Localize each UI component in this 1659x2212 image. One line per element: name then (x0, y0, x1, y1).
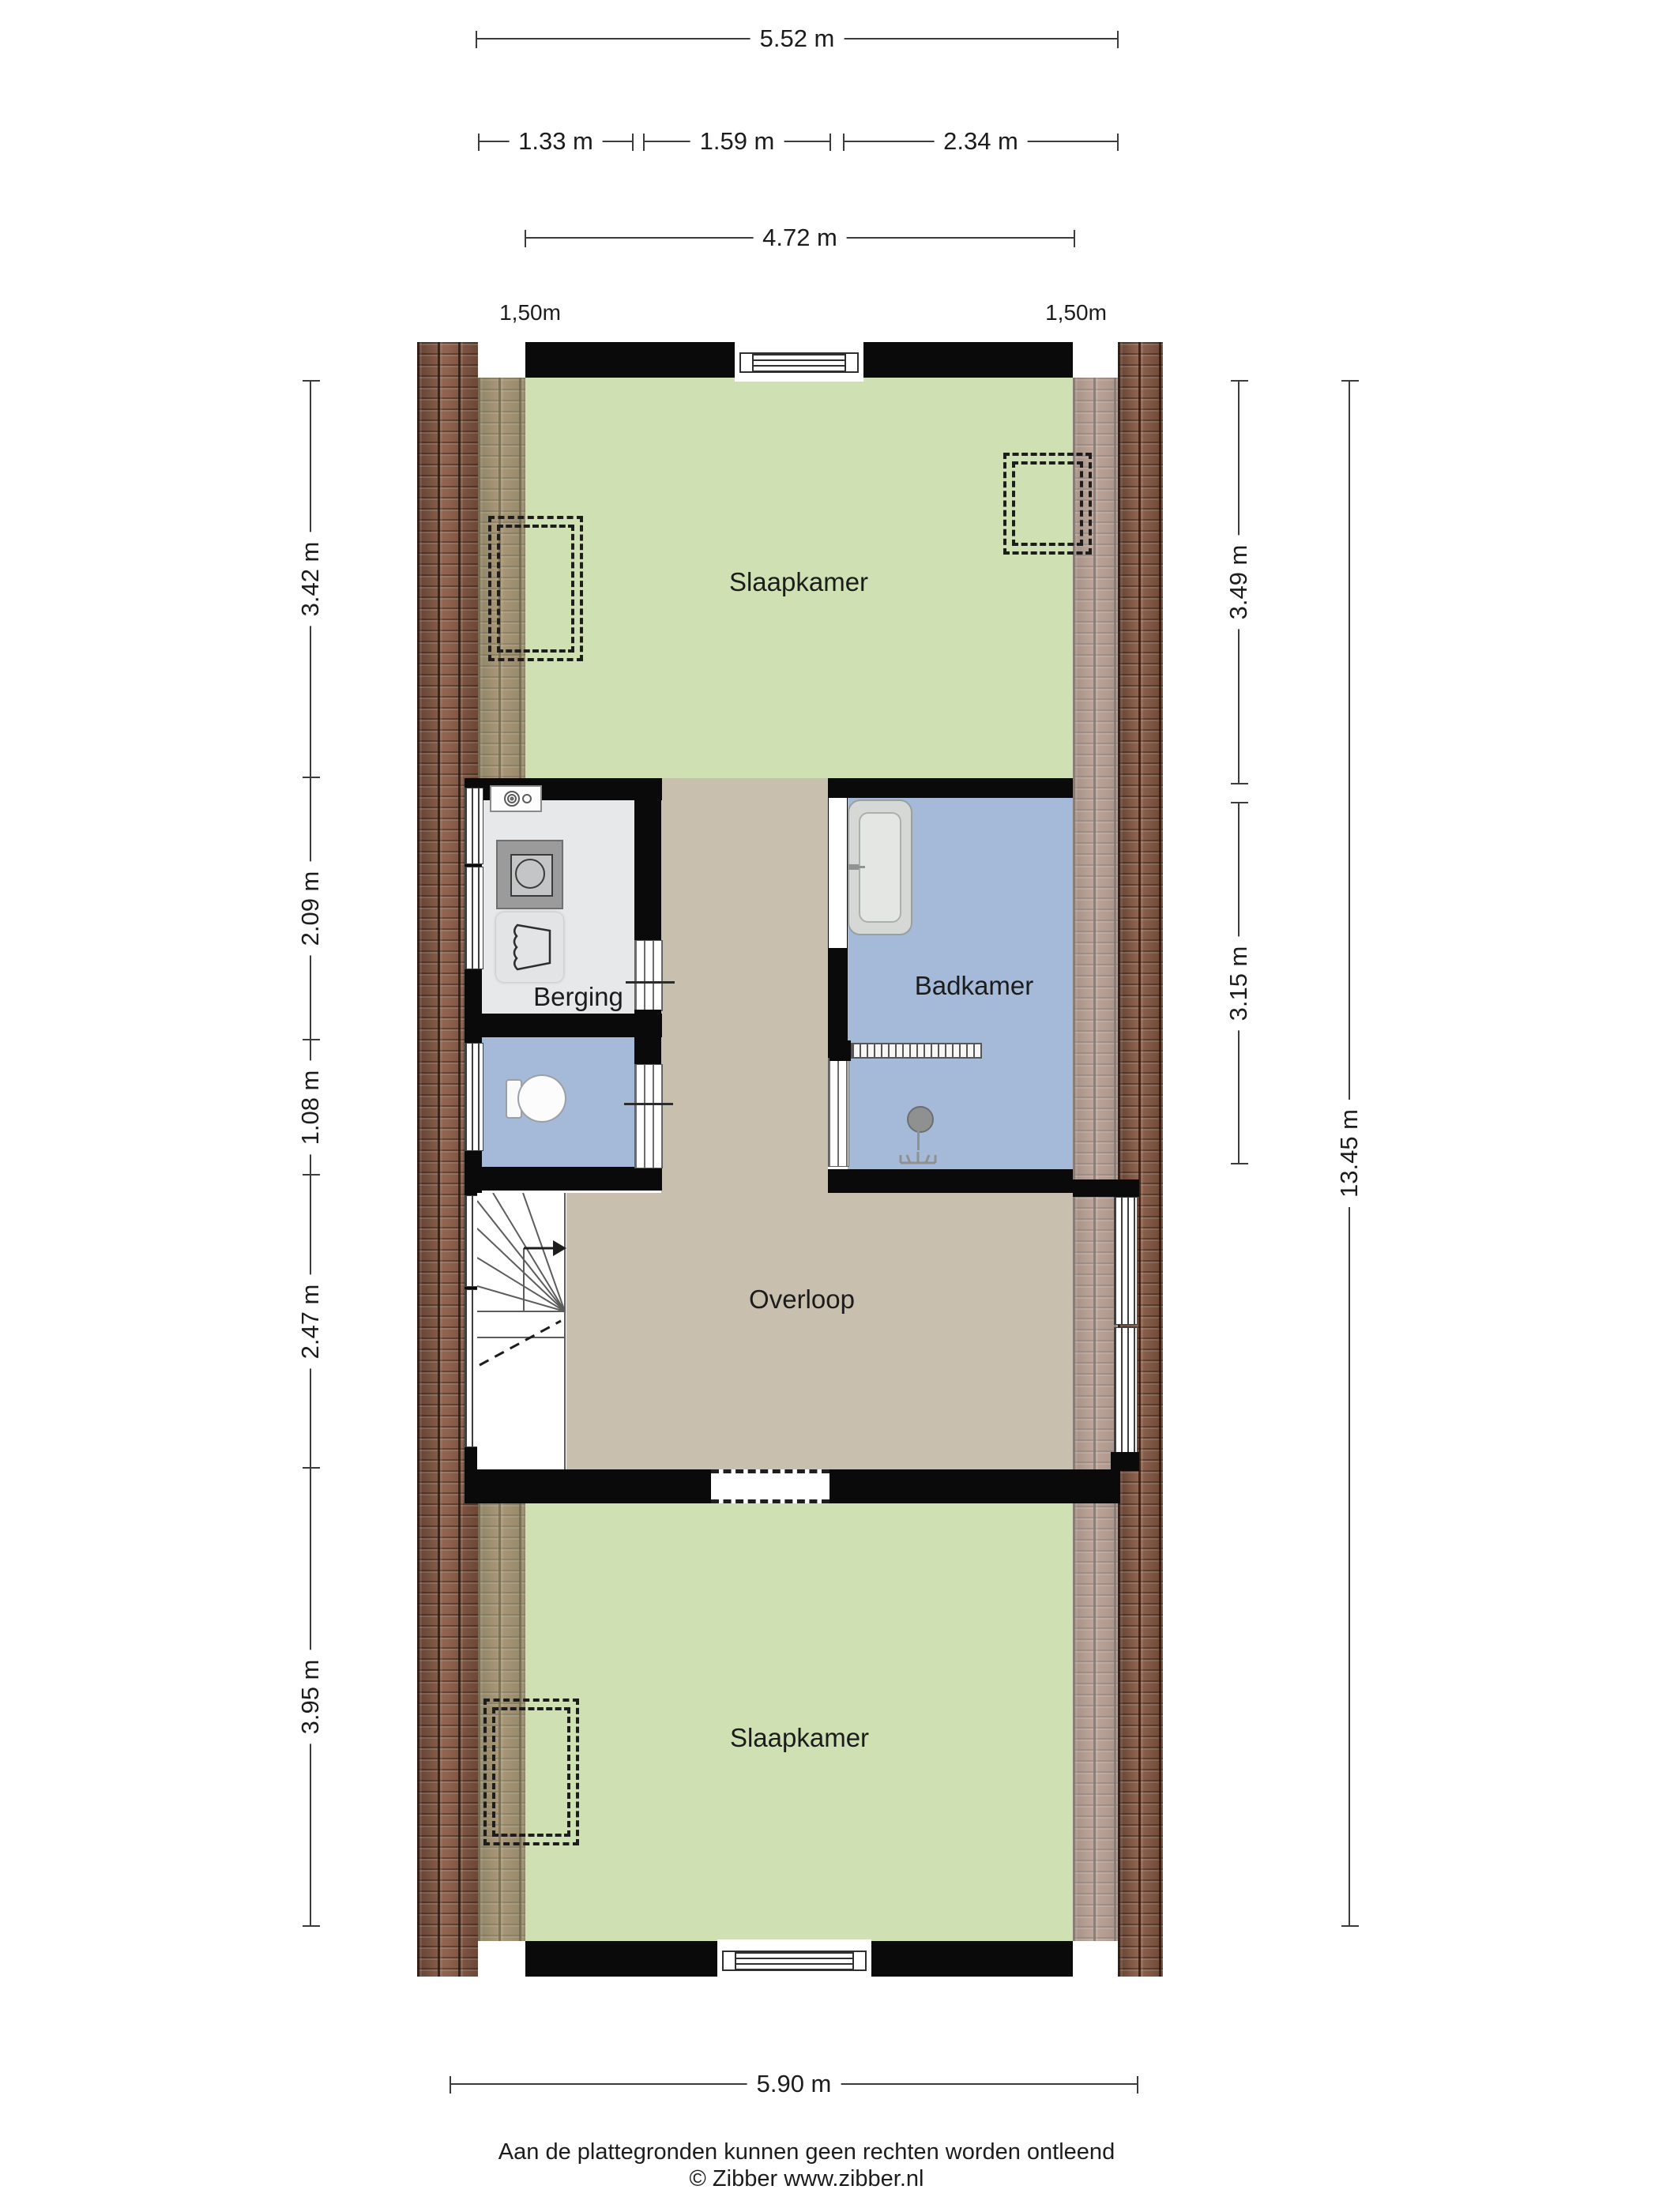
dimension-label: 13.45 m (1334, 1100, 1365, 1207)
dimension-label: 2.47 m (295, 1274, 326, 1368)
door-bathroom (828, 1058, 849, 1167)
footer-disclaimer: Aan de plattegronden kunnen geen rechten… (498, 2139, 1115, 2165)
window-glazing (741, 352, 857, 373)
window-landing-right-2 (1114, 1327, 1138, 1454)
wall-storage-right (634, 778, 661, 940)
wall-storage-right-lower (634, 1010, 661, 1064)
floorplan-page: 5.52 m 1.33 m 1.59 m 2.34 m 4.72 m 1,50m… (0, 0, 1659, 2212)
shower-mixer-icon (896, 1147, 940, 1168)
wall-bathroom-bottom (828, 1169, 1073, 1193)
dimension-left-2: 2.09 m (310, 777, 311, 1040)
wall-landing-right-stub-bottom (1111, 1452, 1139, 1471)
wall-top-left (525, 342, 735, 378)
dimension-top-seg-1: 1.33 m (479, 141, 633, 142)
wall-toilet-bottom (465, 1167, 662, 1191)
dimension-label: 1.33 m (509, 126, 603, 157)
wall-top-right (863, 342, 1073, 378)
dimension-left-4: 2.47 m (310, 1175, 311, 1468)
knee-wall-height-left: 1,50m (499, 300, 561, 325)
dimension-label: 2.34 m (934, 126, 1028, 157)
window-landing-right-1 (1114, 1197, 1138, 1325)
roof-strip-right (1118, 342, 1163, 1977)
dormer-dashed-bottom-left (483, 1698, 579, 1845)
dimension-top-seg-2: 1.59 m (644, 141, 830, 142)
window-cap (845, 352, 859, 373)
dormer-dashed-top-right (1003, 453, 1092, 555)
dimension-left-5: 3.95 m (310, 1468, 311, 1926)
window-cap (722, 1951, 736, 1971)
dimension-label: 1.08 m (295, 1060, 326, 1154)
wall-landing-bottom-right (829, 1469, 1120, 1503)
ventilation-unit-icon (490, 785, 542, 812)
dimension-top-total: 5.52 m (476, 38, 1118, 39)
dimension-label: 5.52 m (750, 23, 845, 55)
window-cap (852, 1951, 867, 1971)
landing-floor (482, 1193, 1073, 1469)
washing-machine-icon (496, 840, 563, 909)
sink-icon (848, 799, 912, 935)
dimension-label: 3.42 m (295, 532, 326, 626)
radiator-icon (851, 1043, 982, 1059)
room-label-landing: Overloop (749, 1285, 855, 1315)
dimension-left-1: 3.42 m (310, 381, 311, 777)
room-label-storage: Berging (533, 982, 623, 1012)
toilet-icon (517, 1074, 566, 1123)
laundry-basket-icon (496, 912, 563, 982)
radiator-end-block (829, 1040, 851, 1061)
wall-landing-right-stub-top (1073, 1179, 1139, 1197)
dimension-bottom: 5.90 m (450, 2083, 1138, 2085)
shower-head-icon (907, 1106, 934, 1133)
dimension-right-1: 3.49 m (1238, 381, 1240, 784)
window-storage-1 (465, 788, 483, 864)
wall-bottom-right (871, 1941, 1073, 1977)
faucet-icon (848, 858, 867, 877)
bathroom-vanity-back (829, 798, 847, 948)
passage-landing-bedroom (711, 1469, 829, 1503)
stairwell (477, 1193, 566, 1469)
dimension-right-2: 3.15 m (1238, 803, 1240, 1164)
window-glazing (724, 1951, 865, 1971)
dimension-top-inner: 4.72 m (525, 237, 1074, 239)
door-toilet (634, 1064, 663, 1168)
wall-bottom-left (525, 1941, 717, 1977)
room-label-bedroom-top: Slaapkamer (729, 567, 868, 597)
wall-landing-bottom-left (465, 1469, 711, 1503)
dimension-label: 4.72 m (753, 222, 847, 254)
toilet-door-swing-line (624, 1103, 673, 1105)
dimension-label: 1.59 m (690, 126, 784, 157)
knee-wall-height-right: 1,50m (1045, 300, 1107, 325)
window-toilet (465, 1043, 483, 1151)
room-label-bathroom: Badkamer (915, 971, 1033, 1001)
wall-bathroom-top (828, 778, 1073, 798)
footer-copyright: © Zibber www.zibber.nl (690, 2166, 924, 2192)
door-storage (634, 940, 663, 1011)
dimension-top-seg-3: 2.34 m (844, 141, 1118, 142)
room-label-bedroom-bottom: Slaapkamer (730, 1723, 869, 1753)
roof-overlay-right (1073, 378, 1118, 1941)
wall-storage-toilet-divider (465, 1014, 662, 1037)
dimension-label: 5.90 m (747, 2068, 841, 2100)
dimension-label: 3.49 m (1223, 536, 1255, 630)
dormer-dashed-top-left (488, 516, 583, 661)
dimension-label: 2.09 m (295, 862, 326, 956)
window-top (735, 342, 863, 382)
window-bottom (717, 1939, 871, 1981)
storage-leader-line (626, 981, 675, 984)
dimension-label: 3.95 m (295, 1650, 326, 1744)
window-cap (739, 352, 754, 373)
window-storage-2 (465, 867, 483, 969)
dimension-right-total: 13.45 m (1349, 381, 1350, 1926)
stairs-icon (477, 1193, 566, 1469)
dimension-label: 3.15 m (1223, 936, 1255, 1030)
landing-corridor-floor (661, 778, 828, 1193)
dimension-left-3: 1.08 m (310, 1040, 311, 1175)
